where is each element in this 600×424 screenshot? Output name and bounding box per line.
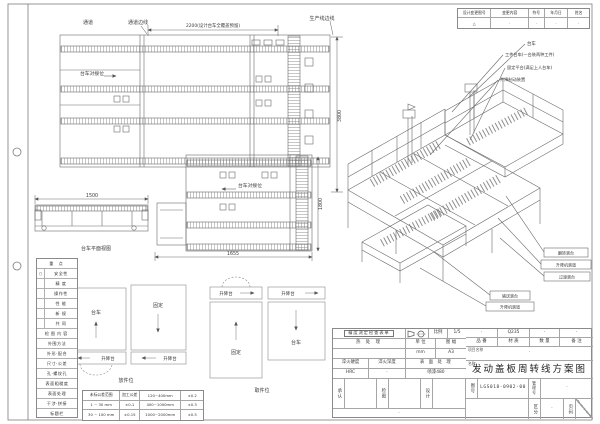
check-mark (37, 279, 45, 288)
manage-no-value: · (541, 379, 593, 399)
tolerance-cell: 未标公差范围 (83, 391, 120, 400)
lift-roller-label: 升降机滚道 (556, 262, 576, 268)
cart-leader-label: 台车 (527, 40, 536, 47)
dock-label-mid: 台车对接位 (238, 182, 262, 189)
page-value: · (578, 400, 579, 405)
cart-label: 台车 (291, 339, 301, 346)
transfer-roller-label: 过渡滚台 (559, 274, 575, 280)
revision-row: △ · · · · (458, 18, 589, 28)
scale-label: 比例 (429, 329, 448, 339)
checklist-label: 表面粗糙度 (37, 381, 77, 387)
qty-value: · (530, 329, 560, 338)
checklist-row: 表面处理 (37, 389, 77, 399)
lift-label: 升降台 (163, 355, 177, 362)
drawing-sheet: 通道 通道边线 2200(设计台车全覆盖预留) 生产线边线 台车对接位 3800… (0, 0, 600, 424)
checklist-label: 安全性 (45, 271, 77, 277)
checklist-row: ○安全性 (37, 269, 77, 279)
plan-view-top (60, 35, 330, 167)
quench-depth-label: 淬火深度 (369, 359, 406, 369)
checklist-row: 外形·配合 (37, 349, 77, 359)
inspection-sheet-cell: 精度测定检查表单 (333, 329, 406, 339)
lift-label: 升降台 (101, 355, 115, 362)
workpiece-cart-leader-label: 工件台车(一台装两种工件) (505, 51, 555, 58)
lift-roller-label2: 升降机滚道 (500, 304, 520, 310)
checklist-label: 精 度 (45, 281, 77, 287)
punch-hole-icon (13, 262, 21, 270)
tolerance-cell: ±0.1 (120, 401, 140, 410)
approve-signature-box (345, 379, 377, 409)
production-edge-label: 生产线边线 (309, 15, 334, 22)
checklist-row: 标题栏 (37, 409, 77, 419)
dim-3800: 3800 (337, 110, 343, 122)
checklist-label: 性 能 (45, 301, 77, 307)
lift-label: 升降台 (219, 290, 233, 297)
checklist-label: 外围方法 (37, 341, 77, 347)
surface-treatment-value: 喷漆480 (406, 369, 466, 379)
remark-value: · (560, 329, 593, 338)
check-mark (37, 299, 45, 308)
project-name-value: · (529, 351, 530, 356)
revision-cell: · (568, 18, 589, 28)
design-label: 设计 (421, 379, 433, 409)
page-value-cell: · (576, 399, 593, 419)
part-no-value: · (466, 329, 498, 338)
checklist-row: 孔·螺纹孔 (37, 369, 77, 379)
tolerance-cell: 加工公差 (120, 391, 140, 400)
checklist-row: 外围方法 (37, 339, 77, 349)
cart-label: 台车 (91, 309, 101, 316)
tolerance-cell: ±0.5 (181, 410, 203, 420)
inspection-sheet-label: 精度测定检查表单 (344, 330, 394, 336)
load-position-caption: 放件位 (118, 377, 133, 384)
tolerance-cell: ±0.2 (181, 391, 203, 400)
revision-cell: · (491, 18, 528, 28)
remark-label: 备 注 (560, 338, 593, 347)
conveyor-roller-label: 输送滚台 (502, 293, 518, 299)
plan-view-mid (157, 155, 312, 251)
revision-cell: · (545, 18, 569, 28)
side-elevation-view (35, 205, 148, 231)
checklist-label: 新 规 (45, 311, 77, 317)
dim-1500: 1500 (86, 193, 98, 199)
checklist-label: 外形·配合 (37, 351, 77, 357)
checklist-label: 孔·螺纹孔 (37, 371, 77, 377)
passage-edge-label: 通道边线 (128, 19, 148, 26)
tolerance-cell: 120~400mm (140, 391, 181, 400)
turnover-roller-label: 翻转滚台 (558, 250, 574, 256)
revision-col-header: 设计变更图号 (458, 9, 491, 17)
checklist-label: 干涉·拼接 (37, 401, 77, 407)
projection-symbol-cell (406, 329, 429, 339)
division-label: 区分 (529, 399, 541, 419)
checklist-row: 精 度 (37, 279, 77, 289)
dim-1655: 1655 (227, 251, 239, 257)
unit-label: 单 位 (406, 339, 436, 349)
drawing-title-cell: 名称 发动盖板周转线方案图 (466, 361, 593, 379)
heat-treatment-value (333, 349, 406, 359)
check-label: 检图 (377, 379, 389, 409)
checklist-section-header: 重 点 (37, 259, 77, 269)
check-signature-box (389, 379, 421, 409)
tolerance-cell: 400~1000mm (140, 401, 181, 410)
spare-cell (466, 399, 529, 419)
footer-cell: · (333, 409, 466, 419)
tolerance-cell: ±0.15 (120, 410, 140, 420)
drawing-no-label: 图号 (466, 379, 478, 399)
quench-hardness-value: HRC (333, 369, 369, 379)
check-mark (37, 309, 45, 318)
revision-header-row: 设计变更图号 变更内容 符号 年月日 姓名 (458, 9, 589, 18)
plan-caption: 台车平面视图 (81, 245, 111, 252)
check-mark (37, 289, 45, 298)
revision-cell: · (529, 18, 545, 28)
revision-col-header: 姓名 (568, 9, 589, 17)
revision-table: 设计变更图号 变更内容 符号 年月日 姓名 △ · · · · (457, 8, 590, 29)
layout-schematic-labels: 台车 固定 升降台 升降台 升降台 固定 升降台 台车 放件位 取件位 (91, 290, 301, 394)
title-block: 精度测定检查表单 比例 1/5 热 处 理 单 位 图 幅 mm A3 淬火硬度… (332, 328, 592, 418)
checklist-row: 性 能 (37, 299, 77, 309)
check-mark: ○ (37, 269, 45, 278)
drawing-title: 发动盖板周转线方案图 (472, 365, 587, 375)
tolerance-cell: ±0.3 (181, 401, 203, 410)
qty-label: 数 量 (530, 338, 560, 347)
checklist-row: 尺寸·公差 (37, 359, 77, 369)
dim-1800: 1800 (318, 198, 324, 210)
checklist-label: 尺寸·公差 (37, 361, 77, 367)
tolerance-cell: 1000~2000mm (140, 410, 181, 420)
approve-label: 承认 (333, 379, 345, 409)
punch-hole-icon (13, 148, 21, 156)
revision-col-header: 年月日 (545, 9, 569, 17)
quench-depth-value: · (369, 369, 406, 379)
checklist-section-header: 检图内容 (37, 329, 77, 339)
tolerance-table: 未标公差范围 加工公差 120~400mm ±0.2 1 ~ 30 mm ±0.… (82, 390, 204, 421)
drawing-no-value: LGS018-0902-00 (478, 379, 529, 399)
material-label: 材 质 (498, 338, 530, 347)
fixed-platform-leader-label: 固定平台(满足上人台车) (507, 64, 553, 71)
division-value: · (541, 399, 564, 419)
manage-no-label: 管理号 (529, 379, 541, 399)
revision-col-header: 变更内容 (491, 9, 528, 17)
dock-label-top: 台车对接位 (80, 70, 104, 77)
checklist-row: 操作性 (37, 289, 77, 299)
checklist-row: 共 同 (37, 319, 77, 329)
fixed-label: 固定 (231, 349, 241, 356)
tolerance-row: 未标公差范围 加工公差 120~400mm ±0.2 (83, 391, 203, 401)
material-value: Q235 (498, 329, 530, 338)
check-mark (37, 319, 45, 328)
format-value: A3 (436, 349, 466, 359)
fixed-label: 固定 (153, 302, 163, 309)
project-name-label: 项目名称 (468, 348, 483, 352)
surface-treatment-label: 表 面 处 理 (406, 359, 466, 369)
checklist-row: 干涉·拼接 (37, 399, 77, 409)
checklist-label: 共 同 (45, 321, 77, 327)
unit-value: mm (406, 349, 436, 359)
checklist-label: 表面处理 (37, 391, 77, 397)
heat-treatment-label: 热 处 理 (333, 339, 406, 349)
projection-symbol-icon (407, 330, 427, 338)
scale-value: 1/5 (448, 329, 466, 339)
checklist-row: 新 规 (37, 309, 77, 319)
revision-cell: △ (458, 18, 491, 28)
tolerance-row: 1 ~ 30 mm ±0.1 400~1000mm ±0.3 (83, 401, 203, 411)
revision-col-header: 符号 (529, 9, 545, 17)
design-signature-box (433, 379, 466, 409)
checklist-label: 标题栏 (37, 411, 77, 417)
tolerance-row: 30 ~ 100 mm ±0.15 1000~2000mm ±0.5 (83, 410, 203, 420)
part-no-label: 品 番 (466, 338, 498, 347)
check-list-table: 重 点 ○安全性 精 度 操作性 性 能 新 规 共 同 检图内容 外围方法 外… (36, 258, 78, 418)
name-label: 名称 (468, 362, 476, 366)
quench-hardness-label: 淬火硬度 (333, 359, 369, 369)
lift-label: 升降台 (281, 290, 295, 297)
lift-brake-leader-label: 升降制动装置 (500, 76, 525, 83)
tolerance-cell: 30 ~ 100 mm (83, 410, 120, 420)
format-label: 图 幅 (436, 339, 466, 349)
checklist-row: 表面粗糙度 (37, 379, 77, 389)
dim-2200: 2200(设计台车全覆盖预留) (186, 22, 240, 29)
tolerance-cell: 1 ~ 30 mm (83, 401, 120, 410)
passage-label: 通道 (83, 19, 93, 26)
isometric-view (348, 44, 591, 311)
pick-position-caption: 取件位 (254, 387, 269, 394)
page-label: 页码 (564, 399, 576, 419)
project-name-cell: 项目名称 · (466, 347, 593, 361)
checklist-label: 操作性 (45, 291, 77, 297)
